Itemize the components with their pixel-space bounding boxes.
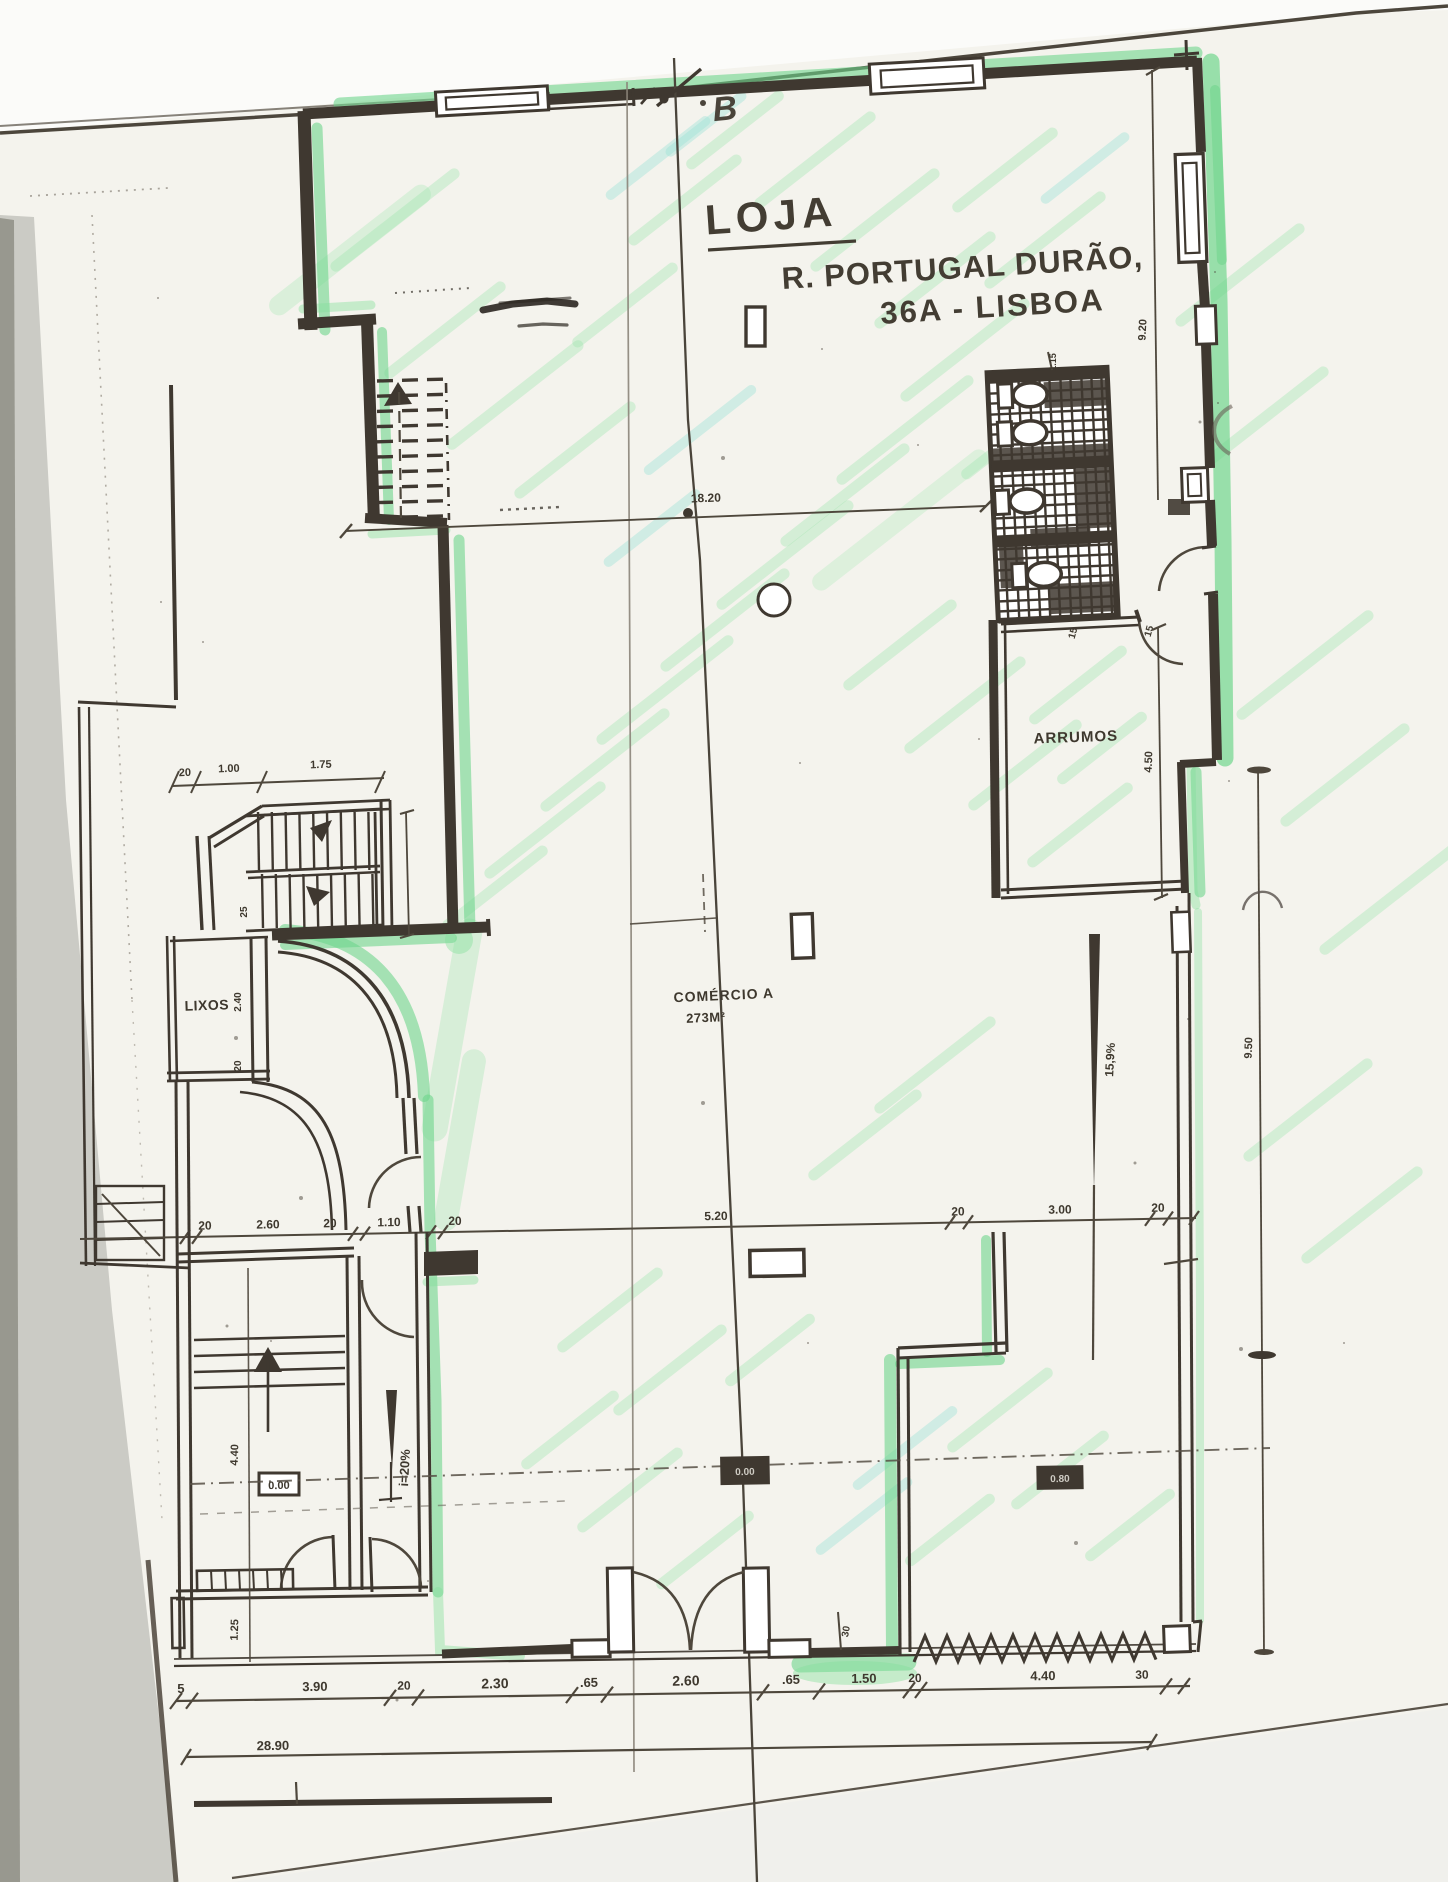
svg-text:3.90: 3.90: [302, 1679, 328, 1694]
svg-text:4.40: 4.40: [229, 1444, 242, 1466]
svg-text:28.90: 28.90: [257, 1738, 290, 1754]
svg-text:2.40: 2.40: [233, 992, 244, 1012]
svg-text:2.30: 2.30: [481, 1675, 509, 1691]
svg-text:9.50: 9.50: [1243, 1037, 1256, 1059]
svg-text:20: 20: [323, 1216, 337, 1230]
svg-text:LIXOS: LIXOS: [184, 996, 229, 1014]
svg-text:1.00: 1.00: [218, 763, 240, 776]
svg-text:20: 20: [198, 1219, 212, 1233]
svg-text:273M²: 273M²: [686, 1009, 726, 1026]
svg-text:30: 30: [1135, 1668, 1149, 1682]
svg-text:20: 20: [448, 1214, 462, 1228]
svg-text:5: 5: [177, 1681, 184, 1696]
svg-text:LOJA: LOJA: [704, 187, 839, 243]
svg-text:20: 20: [1151, 1201, 1165, 1215]
svg-text:1.10: 1.10: [377, 1215, 401, 1229]
svg-text:1.50: 1.50: [851, 1671, 877, 1686]
svg-text:3.00: 3.00: [1048, 1202, 1072, 1216]
svg-text:2.60: 2.60: [672, 1672, 700, 1688]
svg-text:4.40: 4.40: [1030, 1668, 1056, 1683]
svg-text:i=20%: i=20%: [396, 1448, 413, 1486]
svg-text:.65: .65: [782, 1672, 800, 1687]
svg-text:0.00: 0.00: [735, 1467, 755, 1478]
svg-text:9.20: 9.20: [1136, 319, 1149, 341]
svg-text:20: 20: [951, 1204, 965, 1218]
svg-text:4.50: 4.50: [1143, 751, 1156, 773]
svg-text:1.15: 1.15: [1048, 353, 1058, 371]
svg-text:20: 20: [233, 1060, 244, 1072]
svg-text:25: 25: [239, 906, 250, 918]
svg-text:ARRUMOS: ARRUMOS: [1033, 728, 1118, 748]
svg-text:20: 20: [179, 767, 192, 779]
svg-text:20: 20: [397, 1679, 411, 1693]
svg-text:15,9%: 15,9%: [1102, 1042, 1118, 1077]
svg-text:5.20: 5.20: [704, 1209, 728, 1223]
svg-text:1.75: 1.75: [310, 759, 332, 772]
svg-text:.65: .65: [580, 1675, 598, 1690]
svg-text:0.80: 0.80: [1050, 1474, 1070, 1485]
svg-text:20: 20: [908, 1671, 922, 1685]
svg-text:B: B: [711, 89, 739, 129]
svg-text:18.20: 18.20: [691, 490, 722, 505]
svg-text:1.25: 1.25: [229, 1619, 242, 1641]
svg-text:2.60: 2.60: [256, 1217, 280, 1231]
